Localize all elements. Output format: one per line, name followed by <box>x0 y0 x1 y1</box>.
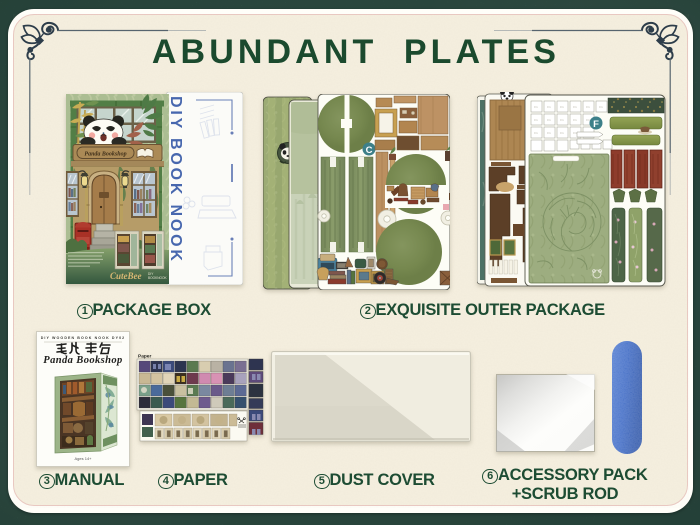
svg-text:F1: F1 <box>586 118 590 122</box>
svg-text:F1: F1 <box>573 118 577 122</box>
svg-text:F1: F1 <box>573 131 577 135</box>
svg-text:F1: F1 <box>586 105 590 109</box>
svg-text:F1: F1 <box>547 105 551 109</box>
svg-text:BOOKNOOK: BOOKNOOK <box>148 276 167 280</box>
svg-text:F: F <box>593 119 599 130</box>
svg-text:DIY WOODEN BOOK NOOK DY02: DIY WOODEN BOOK NOOK DY02 <box>41 336 126 340</box>
svg-text:CuteBee: CuteBee <box>110 271 142 281</box>
svg-text:F1: F1 <box>547 118 551 122</box>
svg-text:F1: F1 <box>560 118 564 122</box>
svg-text:F1: F1 <box>547 131 551 135</box>
svg-text:Paper: Paper <box>138 354 151 360</box>
svg-text:F1: F1 <box>560 105 564 109</box>
svg-text:F1: F1 <box>599 105 603 109</box>
svg-text:Panda Bookshop: Panda Bookshop <box>84 152 126 158</box>
svg-text:Panda Bookshop: Panda Bookshop <box>43 355 122 366</box>
svg-text:F1: F1 <box>573 105 577 109</box>
svg-text:C: C <box>366 145 373 156</box>
svg-text:F1: F1 <box>560 131 564 135</box>
svg-text:DIY BOOK NOOK: DIY BOOK NOOK <box>167 96 184 264</box>
svg-text:F1: F1 <box>534 131 538 135</box>
svg-text:F1: F1 <box>534 118 538 122</box>
svg-text:F1: F1 <box>534 105 538 109</box>
svg-text:Ages 14+: Ages 14+ <box>74 456 92 461</box>
